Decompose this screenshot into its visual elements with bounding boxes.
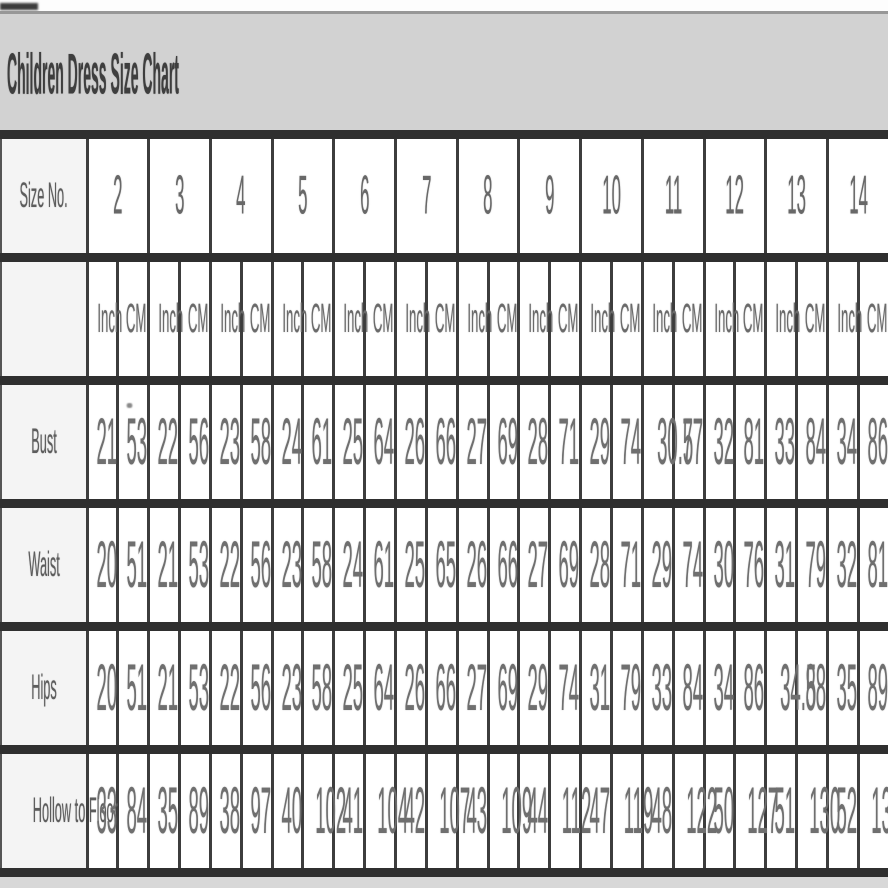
inch-value-cell: 27: [457, 381, 488, 504]
inch-value-cell-text: 21: [158, 527, 179, 603]
size-col-header: 10: [581, 135, 643, 258]
cm-value-cell: 81: [858, 504, 888, 627]
cm-value-cell-text: 71: [620, 527, 641, 603]
cm-value-cell-text: 53: [127, 404, 148, 480]
cm-value-cell-text: 66: [435, 650, 456, 726]
cm-value-cell: 69: [550, 504, 581, 627]
inch-value-cell-text: 23: [219, 404, 240, 480]
cm-value-cell-text: 74: [559, 650, 580, 726]
unit-inch-header-text: Inch: [776, 295, 801, 343]
inch-value-cell: 26: [396, 381, 427, 504]
unit-inch-header: Inch: [396, 258, 427, 381]
unit-inch-header-text: Inch: [529, 295, 554, 343]
inch-value-cell-text: 20: [96, 527, 117, 603]
unit-cm-header-text: CM: [435, 295, 456, 343]
cm-value-cell: 81: [735, 381, 766, 504]
inch-value-cell: 28: [581, 504, 612, 627]
row-label-text: Waist: [28, 544, 59, 586]
cm-value-cell-text: 69: [497, 650, 518, 726]
inch-value-cell: 20: [87, 627, 118, 750]
cm-value-cell: 58: [241, 381, 272, 504]
inch-value-cell: 22: [210, 504, 241, 627]
cm-value-cell-text: 119: [624, 773, 654, 849]
cm-value-cell: 61: [303, 381, 334, 504]
unit-inch-header: Inch: [519, 258, 550, 381]
inch-value-cell-text: 23: [281, 650, 302, 726]
cm-value-cell: 56: [241, 627, 272, 750]
inch-value-cell-text: 21: [96, 404, 117, 480]
cm-value-cell-text: 76: [744, 527, 765, 603]
unit-inch-header-text: Inch: [590, 295, 615, 343]
row-label: Hollow to Floor: [1, 750, 87, 873]
cm-value-cell: 74: [550, 627, 581, 750]
cm-value-cell-text: 84: [127, 773, 148, 849]
unit-inch-header-text: Inch: [97, 295, 122, 343]
inch-value-cell-text: 47: [590, 773, 611, 849]
measurement-row: Waist20512153225623582461256526662769287…: [1, 504, 888, 627]
size-col-header: 14: [827, 135, 888, 258]
inch-value-cell: 40: [272, 750, 303, 873]
unit-inch-header-text: Inch: [282, 295, 307, 343]
cm-value-cell: 69: [488, 627, 519, 750]
inch-value-cell-text: 35: [836, 650, 857, 726]
inch-value-cell: 30: [704, 504, 735, 627]
size-col-header-text: 10: [602, 165, 621, 227]
cm-value-cell-text: 89: [189, 773, 210, 849]
cm-value-cell-text: 64: [374, 650, 395, 726]
unit-inch-header: Inch: [457, 258, 488, 381]
cm-value-cell: 79: [611, 627, 642, 750]
cm-value-cell: 65: [426, 504, 457, 627]
unit-cm-header: CM: [241, 258, 272, 381]
inch-value-cell: 33: [766, 381, 797, 504]
size-col-header-text: 13: [787, 165, 806, 227]
cm-value-cell-text: 84: [682, 650, 703, 726]
inch-value-cell-text: 26: [466, 527, 487, 603]
cm-value-cell: 71: [611, 504, 642, 627]
unit-inch-header: Inch: [210, 258, 241, 381]
cm-value-cell: 51: [118, 627, 149, 750]
cm-value-cell: 53: [180, 504, 211, 627]
inch-value-cell-text: 40: [281, 773, 302, 849]
cm-value-cell-text: 64: [374, 404, 395, 480]
unit-inch-header: Inch: [642, 258, 673, 381]
unit-cm-header-text: CM: [682, 295, 703, 343]
inch-value-cell: 32: [704, 381, 735, 504]
cm-value-cell: 97: [241, 750, 272, 873]
unit-inch-header: Inch: [334, 258, 365, 381]
corner-cell: Size No.: [1, 135, 87, 258]
cm-value-cell-text: 88: [806, 650, 827, 726]
inch-value-cell-text: 29: [651, 527, 672, 603]
cm-value-cell-text: 58: [250, 404, 271, 480]
inch-value-cell: 20: [87, 504, 118, 627]
size-col-header: 3: [149, 135, 211, 258]
inch-value-cell: 29: [642, 504, 673, 627]
inch-value-cell: 26: [457, 504, 488, 627]
unit-inch-header-text: Inch: [652, 295, 677, 343]
scan-artifact-dash: [0, 3, 38, 10]
inch-value-cell: 25: [334, 627, 365, 750]
cm-value-cell: 84: [118, 750, 149, 873]
cm-value-cell: 53: [118, 381, 149, 504]
measurement-row: Bust215322562358246125642666276928712974…: [1, 381, 888, 504]
cm-value-cell-text: 89: [867, 650, 888, 726]
inch-value-cell: 23: [272, 504, 303, 627]
row-label-text: Bust: [31, 421, 57, 463]
unit-inch-header: Inch: [272, 258, 303, 381]
inch-value-cell: 33: [642, 627, 673, 750]
unit-cm-header: CM: [611, 258, 642, 381]
size-col-header: 7: [396, 135, 458, 258]
inch-value-cell-text: 33: [96, 773, 117, 849]
size-col-header: 12: [704, 135, 766, 258]
cm-value-cell: 58: [303, 504, 334, 627]
unit-cm-header: CM: [858, 258, 888, 381]
inch-value-cell: 34: [704, 627, 735, 750]
cm-value-cell: 66: [426, 381, 457, 504]
cm-value-cell-text: 97: [250, 773, 271, 849]
size-col-header: 4: [210, 135, 272, 258]
size-col-header-text: 2: [113, 165, 122, 227]
inch-value-cell: 35: [827, 627, 858, 750]
inch-value-cell: 24: [272, 381, 303, 504]
cm-value-cell: 104: [365, 750, 396, 873]
inch-value-cell: 31: [766, 504, 797, 627]
cm-value-cell: 102: [303, 750, 334, 873]
inch-value-cell: 38: [210, 750, 241, 873]
cm-value-cell: 64: [365, 381, 396, 504]
cm-value-cell: 86: [735, 627, 766, 750]
inch-value-cell: 34.5: [766, 627, 797, 750]
inch-value-cell-text: 31: [775, 527, 796, 603]
inch-value-cell-text: 28: [590, 527, 611, 603]
inch-value-cell: 29: [519, 627, 550, 750]
inch-value-cell: 32: [827, 504, 858, 627]
inch-value-cell-text: 33: [651, 650, 672, 726]
unit-inch-header-text: Inch: [220, 295, 245, 343]
unit-inch-header: Inch: [581, 258, 612, 381]
inch-value-cell: 25: [396, 504, 427, 627]
row-label: Hips: [1, 627, 87, 750]
unit-cm-header: CM: [426, 258, 457, 381]
unit-inch-header-text: Inch: [467, 295, 492, 343]
unit-cm-header: CM: [797, 258, 828, 381]
inch-value-cell: 23: [210, 381, 241, 504]
size-col-header: 8: [457, 135, 519, 258]
unit-row: InchCMInchCMInchCMInchCMInchCMInchCMInch…: [1, 258, 888, 381]
cm-value-cell-text: 86: [867, 404, 888, 480]
cm-value-cell: 86: [858, 381, 888, 504]
inch-value-cell: 24: [334, 504, 365, 627]
cm-value-cell-text: 56: [250, 527, 271, 603]
cm-value-cell: 122: [673, 750, 704, 873]
cm-value-cell-text: 84: [806, 404, 827, 480]
inch-value-cell-text: 27: [528, 527, 549, 603]
unit-row-blank-cell: [1, 258, 87, 381]
unit-inch-header-text: Inch: [344, 295, 369, 343]
unit-inch-header-text: Inch: [837, 295, 862, 343]
inch-value-cell: 35: [149, 750, 180, 873]
cm-value-cell: 132: [858, 750, 888, 873]
inch-value-cell-text: 34: [713, 650, 734, 726]
inch-value-cell: 30.5: [642, 381, 673, 504]
unit-cm-header-text: CM: [558, 295, 579, 343]
measurement-row: Hips205121532256235825642666276929743179…: [1, 627, 888, 750]
cm-value-cell-text: 69: [497, 404, 518, 480]
cm-value-cell: 112: [550, 750, 581, 873]
cm-value-cell-text: 66: [435, 404, 456, 480]
cm-value-cell: 107: [426, 750, 457, 873]
cm-value-cell: 71: [550, 381, 581, 504]
cm-value-cell-text: 74: [620, 404, 641, 480]
cm-value-cell-text: 61: [312, 404, 333, 480]
cm-value-cell-text: 79: [806, 527, 827, 603]
inch-value-cell-text: 29: [528, 650, 549, 726]
size-col-header-text: 6: [360, 165, 369, 227]
inch-value-cell: 21: [87, 381, 118, 504]
inch-value-cell: 28: [519, 381, 550, 504]
cm-value-cell: 74: [673, 504, 704, 627]
inch-value-cell: 23: [272, 627, 303, 750]
inch-value-cell: 26: [396, 627, 427, 750]
inch-value-cell-text: 25: [343, 650, 364, 726]
unit-cm-header: CM: [365, 258, 396, 381]
cm-value-cell: 79: [797, 504, 828, 627]
inch-value-cell-text: 42: [404, 773, 425, 849]
size-col-header: 6: [334, 135, 396, 258]
unit-inch-header-text: Inch: [714, 295, 739, 343]
unit-cm-header-text: CM: [743, 295, 764, 343]
inch-value-cell-text: 27: [466, 404, 487, 480]
cm-value-cell: 130: [797, 750, 828, 873]
cm-value-cell-text: 107: [439, 773, 470, 849]
inch-value-cell-text: 22: [219, 527, 240, 603]
cm-value-cell: 66: [488, 504, 519, 627]
cm-value-cell: 51: [118, 504, 149, 627]
unit-cm-header-text: CM: [620, 295, 641, 343]
inch-value-cell-text: 32: [713, 404, 734, 480]
inch-value-cell: 27: [457, 627, 488, 750]
inch-value-cell-text: 26: [404, 404, 425, 480]
cm-value-cell-text: 58: [312, 650, 333, 726]
unit-cm-header-text: CM: [311, 295, 332, 343]
inch-value-cell-text: 20: [96, 650, 117, 726]
inch-value-cell-text: 27: [466, 650, 487, 726]
corner-label: Size No.: [20, 175, 68, 217]
unit-inch-header: Inch: [766, 258, 797, 381]
inch-value-cell-text: 23: [281, 527, 302, 603]
size-chart-page: Children Dress Size Chart Size No. 23456…: [0, 0, 888, 888]
cm-value-cell-text: 122: [686, 773, 717, 849]
row-label: Bust: [1, 381, 87, 504]
page-title: Children Dress Size Chart: [7, 42, 179, 108]
bottom-strip: [0, 877, 888, 888]
unit-cm-header-text: CM: [805, 295, 826, 343]
inch-value-cell-text: 43: [466, 773, 487, 849]
unit-cm-header: CM: [673, 258, 704, 381]
cm-value-cell-text: 86: [744, 650, 765, 726]
scan-artifact-smudge: [125, 403, 134, 408]
cm-value-cell-text: 81: [867, 527, 888, 603]
inch-value-cell-text: 28: [528, 404, 549, 480]
cm-value-cell: 69: [488, 381, 519, 504]
size-col-header-text: 7: [422, 165, 431, 227]
cm-value-cell: 89: [858, 627, 888, 750]
cm-value-cell-text: 77: [682, 404, 703, 480]
row-label-text: Hips: [31, 667, 57, 709]
size-header-row: Size No. 234567891011121314: [1, 135, 888, 258]
inch-value-cell: 22: [149, 381, 180, 504]
inch-value-cell-text: 25: [404, 527, 425, 603]
unit-cm-header-text: CM: [867, 295, 888, 343]
size-col-header-text: 3: [175, 165, 184, 227]
inch-value-cell-text: 51: [775, 773, 796, 849]
size-col-header-text: 12: [726, 165, 745, 227]
inch-value-cell-text: 31: [590, 650, 611, 726]
inch-value-cell-text: 44: [528, 773, 549, 849]
unit-cm-header-text: CM: [188, 295, 209, 343]
cm-value-cell-text: 132: [871, 773, 888, 849]
cm-value-cell-text: 58: [312, 527, 333, 603]
size-col-header-text: 4: [237, 165, 246, 227]
title-band: Children Dress Size Chart: [0, 11, 888, 130]
inch-value-cell-text: 22: [158, 404, 179, 480]
size-col-header-text: 14: [850, 165, 869, 227]
inch-value-cell-text: 41: [343, 773, 364, 849]
cm-value-cell: 66: [426, 627, 457, 750]
inch-value-cell: 21: [149, 627, 180, 750]
inch-value-cell-text: 35: [158, 773, 179, 849]
size-col-header: 11: [642, 135, 704, 258]
inch-value-cell-text: 29: [590, 404, 611, 480]
unit-inch-header: Inch: [149, 258, 180, 381]
inch-value-cell-text: 25: [343, 404, 364, 480]
cm-value-cell: 76: [735, 504, 766, 627]
unit-cm-header: CM: [550, 258, 581, 381]
measurement-row: Hollow to Floor3384358938974010241104421…: [1, 750, 888, 873]
size-col-header-text: 5: [298, 165, 307, 227]
size-col-header-text: 11: [664, 165, 681, 227]
cm-value-cell: 84: [673, 627, 704, 750]
inch-value-cell-text: 24: [343, 527, 364, 603]
inch-value-cell-text: 50: [713, 773, 734, 849]
row-label: Waist: [1, 504, 87, 627]
cm-value-cell-text: 53: [189, 650, 210, 726]
cm-value-cell-text: 81: [744, 404, 765, 480]
unit-cm-header-text: CM: [373, 295, 394, 343]
inch-value-cell-text: 22: [219, 650, 240, 726]
size-col-header: 2: [87, 135, 149, 258]
inch-value-cell-text: 30: [713, 527, 734, 603]
cm-value-cell: 74: [611, 381, 642, 504]
cm-value-cell: 56: [180, 381, 211, 504]
inch-value-cell-text: 33: [775, 404, 796, 480]
inch-value-cell-text: 52: [836, 773, 857, 849]
unit-inch-header: Inch: [87, 258, 118, 381]
inch-value-cell-text: 32: [836, 527, 857, 603]
cm-value-cell: 53: [180, 627, 211, 750]
unit-inch-header-text: Inch: [405, 295, 430, 343]
size-col-header-text: 9: [545, 165, 554, 227]
cm-value-cell: 127: [735, 750, 766, 873]
cm-value-cell: 109: [488, 750, 519, 873]
cm-value-cell-text: 71: [559, 404, 580, 480]
cm-value-cell: 61: [365, 504, 396, 627]
size-col-header: 13: [766, 135, 828, 258]
size-col-header: 5: [272, 135, 334, 258]
cm-value-cell-text: 65: [435, 527, 456, 603]
cm-value-cell: 84: [797, 381, 828, 504]
unit-inch-header: Inch: [704, 258, 735, 381]
cm-value-cell-text: 56: [250, 650, 271, 726]
inch-value-cell: 27: [519, 504, 550, 627]
inch-value-cell-text: 26: [404, 650, 425, 726]
cm-value-cell-text: 56: [189, 404, 210, 480]
cm-value-cell-text: 53: [189, 527, 210, 603]
inch-value-cell-text: 48: [651, 773, 672, 849]
cm-value-cell-text: 51: [127, 650, 148, 726]
inch-value-cell: 21: [149, 504, 180, 627]
unit-cm-header: CM: [180, 258, 211, 381]
size-chart-table: Size No. 234567891011121314 InchCMInchCM…: [0, 130, 888, 877]
cm-value-cell-text: 66: [497, 527, 518, 603]
cm-value-cell-text: 51: [127, 527, 148, 603]
inch-value-cell: 31: [581, 627, 612, 750]
unit-cm-header: CM: [488, 258, 519, 381]
size-col-header-text: 8: [483, 165, 492, 227]
unit-inch-header: Inch: [827, 258, 858, 381]
cm-value-cell: 56: [241, 504, 272, 627]
unit-cm-header-text: CM: [250, 295, 271, 343]
unit-cm-header: CM: [303, 258, 334, 381]
inch-value-cell: 34: [827, 381, 858, 504]
cm-value-cell: 119: [611, 750, 642, 873]
cm-value-cell-text: 79: [620, 650, 641, 726]
unit-cm-header-text: CM: [126, 295, 147, 343]
cm-value-cell-text: 74: [682, 527, 703, 603]
cm-value-cell-text: 61: [374, 527, 395, 603]
inch-value-cell: 25: [334, 381, 365, 504]
inch-value-cell-text: 38: [219, 773, 240, 849]
inch-value-cell: 22: [210, 627, 241, 750]
unit-inch-header-text: Inch: [159, 295, 184, 343]
unit-cm-header-text: CM: [496, 295, 517, 343]
cm-value-cell: 89: [180, 750, 211, 873]
inch-value-cell: 29: [581, 381, 612, 504]
cm-value-cell-text: 69: [559, 527, 580, 603]
inch-value-cell-text: 21: [158, 650, 179, 726]
size-col-header: 9: [519, 135, 581, 258]
cm-value-cell: 64: [365, 627, 396, 750]
inch-value-cell-text: 24: [281, 404, 302, 480]
cm-value-cell-text: 112: [562, 773, 592, 849]
inch-value-cell-text: 34: [836, 404, 857, 480]
cm-value-cell: 58: [303, 627, 334, 750]
